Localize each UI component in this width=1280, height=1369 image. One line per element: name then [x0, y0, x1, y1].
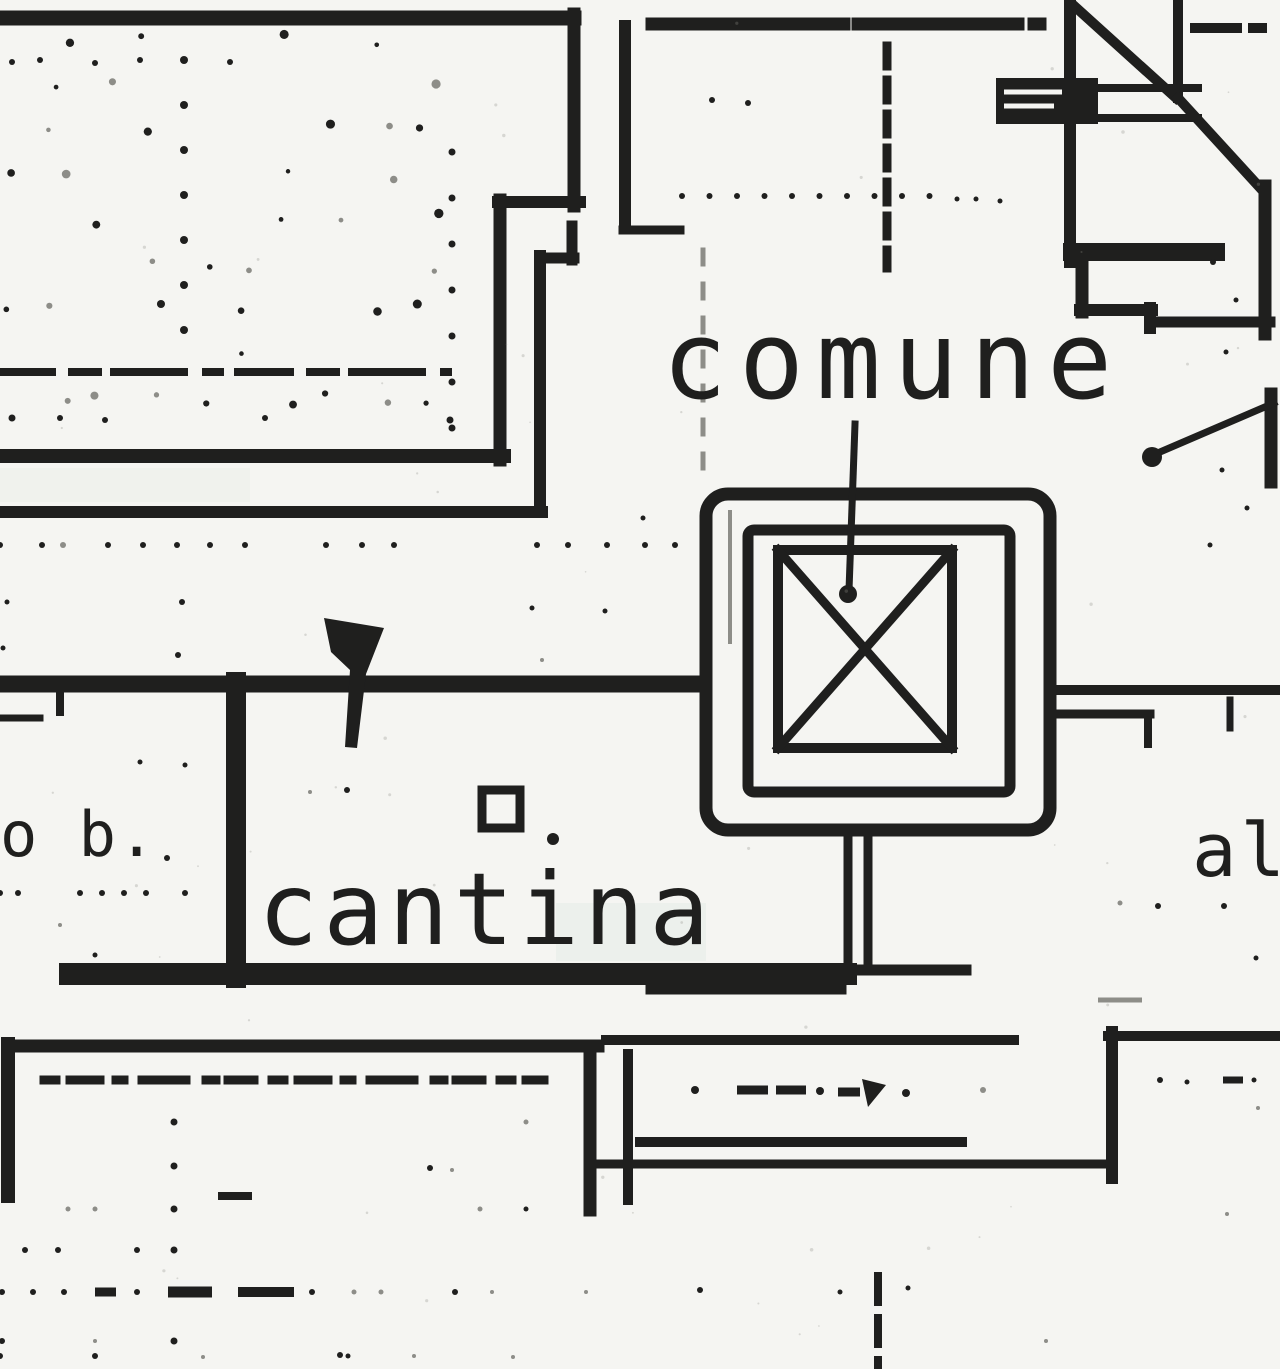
stipple-dot: [1221, 903, 1227, 909]
stipple-dot: [816, 1087, 824, 1095]
stipple-dot: [707, 193, 713, 199]
stipple-dot: [60, 542, 66, 548]
stipple-dot: [61, 1289, 67, 1295]
scan-speck: [502, 134, 505, 137]
stipple-dot: [478, 1207, 483, 1212]
stipple-dot: [899, 193, 905, 199]
stipple-dot: [697, 1287, 703, 1293]
scan-speck: [735, 22, 738, 25]
stipple-dot: [180, 191, 188, 199]
stipple-dot: [54, 85, 59, 90]
stipple-dot: [906, 1286, 911, 1291]
stipple-dot: [180, 101, 188, 109]
scan-speck: [248, 1019, 250, 1021]
scan-speck: [257, 258, 260, 261]
stipple-dot: [180, 236, 188, 244]
stipple-dot: [927, 193, 933, 199]
stipple-dot: [326, 120, 335, 129]
stipple-dot: [838, 1290, 843, 1295]
stipple-dot: [92, 1353, 98, 1359]
stipple-dot: [434, 209, 443, 218]
stipple-dot: [524, 1120, 529, 1125]
stipple-dot: [452, 1289, 458, 1295]
stipple-dot: [1252, 1078, 1257, 1083]
stipple-dot: [134, 1289, 140, 1295]
stipple-dot: [385, 399, 391, 405]
stipple-dot: [180, 281, 188, 289]
stipple-dot: [77, 890, 83, 896]
stipple-dot: [323, 542, 329, 548]
stipple-dot: [416, 124, 423, 131]
stipple-dot: [143, 890, 149, 896]
stipple-dot: [22, 1247, 28, 1253]
stipple-dot: [15, 890, 21, 896]
stipple-dot: [391, 542, 397, 548]
stipple-dot: [449, 241, 456, 248]
stipple-dot: [66, 39, 74, 47]
stipple-dot: [449, 333, 456, 340]
stipple-dot: [346, 1354, 351, 1359]
stipple-dot: [789, 193, 795, 199]
scan-speck: [601, 1176, 604, 1179]
stipple-dot: [134, 1247, 140, 1253]
scan-speck: [335, 786, 337, 788]
scan-speck: [927, 1246, 931, 1250]
floor-plan-scan: comune cantina o b. al: [0, 0, 1280, 1369]
stipple-dot: [390, 176, 397, 183]
stipple-dot: [242, 542, 248, 548]
stipple-dot: [92, 60, 98, 66]
scan-speck: [1186, 363, 1189, 366]
scan-speck: [799, 1333, 801, 1335]
walls: [0, 14, 1280, 1210]
stipple-dot: [138, 760, 143, 765]
stipple-dot: [1254, 956, 1259, 961]
tint-patch: [0, 468, 250, 502]
stipple-dot: [144, 127, 152, 135]
stipple-dot: [450, 1168, 454, 1172]
scan-speck: [757, 1302, 759, 1304]
scan-speck: [810, 1248, 814, 1252]
arrow-triangle-mark: [862, 1079, 886, 1107]
stipple-dot: [207, 264, 213, 270]
scan-speck: [52, 792, 54, 794]
stipple-dot: [4, 306, 10, 312]
stipple-dot: [174, 542, 180, 548]
stipple-dot: [150, 258, 156, 264]
scan-speck: [585, 571, 587, 573]
scan-speck: [1121, 130, 1125, 134]
stipple-dot: [280, 30, 289, 39]
stipple-dot: [955, 197, 960, 202]
stipple-dot: [642, 542, 648, 548]
stipple-dot: [99, 890, 105, 896]
stipple-dot: [1157, 1077, 1163, 1083]
stipple-dot: [844, 193, 850, 199]
stipple-dot: [524, 1207, 529, 1212]
stipple-dot: [180, 146, 188, 154]
scan-speck: [860, 176, 863, 179]
stipple-dot: [109, 78, 116, 85]
stipple-dot: [66, 1207, 71, 1212]
comune-leader-line: [849, 424, 855, 590]
stipple-dot: [374, 42, 379, 47]
stipple-dot: [0, 890, 3, 896]
scan-speck: [135, 884, 138, 887]
stipple-dot: [322, 390, 328, 396]
stair-diagonal: [1178, 98, 1264, 192]
stipple-dot: [9, 59, 15, 65]
stipple-dot: [352, 1290, 357, 1295]
scan-speck: [1257, 183, 1260, 186]
stipple-dot: [745, 100, 751, 106]
stipple-dot: [449, 379, 456, 386]
scan-speck: [159, 956, 161, 958]
stipple-dot: [604, 542, 610, 548]
scan-speck: [162, 1269, 165, 1272]
stipple-dot: [337, 1352, 343, 1358]
scan-speck: [818, 1325, 820, 1327]
stipple-dot: [137, 57, 143, 63]
stipple-dot: [93, 953, 98, 958]
stipple-dot: [121, 890, 127, 896]
stipple-dot: [1210, 259, 1216, 265]
elevator-symbol: [706, 494, 1050, 974]
stipple-dot: [289, 401, 297, 409]
scan-speck: [494, 103, 497, 106]
stipple-dot: [171, 1119, 178, 1126]
stipple-dot: [238, 307, 245, 314]
room-labels: comune cantina o b. al: [0, 299, 1280, 968]
stipple-dot: [90, 392, 98, 400]
stipple-dot: [201, 1355, 205, 1359]
stipple-dot: [379, 1290, 384, 1295]
stipple-dot: [171, 1338, 178, 1345]
stipple-dot: [432, 269, 437, 274]
stipple-dot: [37, 57, 43, 63]
scan-speck: [979, 1236, 981, 1238]
stipple-dot: [203, 400, 209, 406]
scan-speck: [506, 343, 508, 345]
stipple-dot: [709, 97, 715, 103]
small-dot-mark: [547, 833, 559, 845]
stipple-dot: [359, 542, 365, 548]
stipple-dot: [386, 123, 393, 130]
stipple-dot: [449, 195, 456, 202]
stipple-dot: [1234, 298, 1239, 303]
stipple-dot: [672, 542, 678, 548]
stipple-dot: [105, 542, 111, 548]
stipple-dot: [279, 217, 284, 222]
door-leader-dot: [1142, 447, 1162, 467]
scan-speck: [1089, 603, 1092, 606]
stipple-dot: [182, 890, 188, 896]
scan-speck: [747, 847, 750, 850]
stipple-dot: [0, 1289, 5, 1295]
stipple-dot: [46, 128, 51, 133]
scan-speck: [366, 1212, 369, 1215]
stipple-dot: [565, 542, 571, 548]
label-al-partial: al: [1192, 808, 1280, 894]
dashed-lines: [0, 46, 887, 1369]
stipple-dot: [427, 1165, 433, 1171]
stipple-dot: [679, 193, 685, 199]
stipple-dot: [734, 193, 740, 199]
scan-speck: [529, 421, 531, 423]
stipple-dot: [530, 606, 535, 611]
scan-speck: [61, 427, 63, 429]
scan-speck: [436, 491, 439, 494]
stipple-dot: [449, 425, 456, 432]
stipple-dot: [449, 149, 456, 156]
stipple-dot: [65, 398, 71, 404]
stipple-dot: [308, 790, 312, 794]
stipple-dot: [62, 170, 71, 179]
stipple-dot: [58, 923, 62, 927]
scan-speck: [1051, 67, 1054, 70]
scan-speck: [304, 633, 307, 636]
stipple-dot: [5, 600, 10, 605]
stipple-dot: [490, 1290, 494, 1294]
scan-speck: [1010, 1206, 1012, 1208]
scan-speck: [1106, 862, 1108, 864]
stipple-dot: [57, 415, 63, 421]
stipple-dot: [1118, 901, 1123, 906]
label-comune: comune: [662, 299, 1124, 424]
stipple-dot: [239, 351, 244, 356]
scan-speck: [1080, 251, 1082, 253]
stipple-dot: [171, 1206, 178, 1213]
stipple-dot: [423, 400, 428, 405]
stipple-dot: [1225, 1212, 1229, 1216]
stipple-dot: [179, 599, 185, 605]
stipple-dot: [180, 326, 188, 334]
label-cantina: cantina: [258, 851, 714, 968]
stipple-dot: [1155, 903, 1161, 909]
stipple-dot: [511, 1355, 515, 1359]
stipple-dot: [171, 1163, 178, 1170]
stipple-dot: [1185, 1080, 1190, 1085]
stipple-dot: [449, 287, 456, 294]
stipple-dot: [55, 1247, 61, 1253]
scan-speck: [845, 589, 848, 592]
stipple-dot: [9, 415, 16, 422]
stipple-dot: [534, 542, 540, 548]
stipple-dot: [309, 1289, 315, 1295]
scan-speck: [143, 246, 146, 249]
stipple-dot: [93, 1339, 97, 1343]
scan-speck: [176, 1277, 178, 1279]
stipple-dot: [1245, 506, 1250, 511]
small-square-mark: [482, 790, 520, 828]
stipple-dot: [1220, 468, 1225, 473]
stipple-dot: [92, 221, 100, 229]
stipple-dot: [344, 787, 350, 793]
scan-speck: [388, 793, 391, 796]
stipple-dot: [641, 516, 646, 521]
stipple-dot: [373, 307, 382, 316]
label-ob-partial: o b.: [0, 798, 157, 871]
stipple-dot: [180, 56, 188, 64]
stipple-dot: [175, 652, 181, 658]
stipple-dot: [339, 218, 344, 223]
stipple-dot: [1, 646, 6, 651]
stipple-dot: [431, 79, 440, 88]
stairs-symbol: [996, 0, 1270, 334]
stipple-dot: [974, 197, 979, 202]
stipple-dot: [691, 1086, 699, 1094]
stipple-dot: [902, 1089, 910, 1097]
scan-speck: [250, 851, 252, 853]
stipple-dot: [762, 193, 768, 199]
scan-speck: [381, 382, 383, 384]
stipple-dot: [584, 1290, 588, 1294]
scan-speck: [1228, 91, 1230, 93]
door-leader-line: [1160, 403, 1274, 452]
scan-speck: [416, 472, 418, 474]
stipple-dot: [1224, 350, 1229, 355]
stipple-dot: [154, 392, 159, 397]
stipple-dot: [998, 199, 1003, 204]
stipple-dot: [164, 855, 170, 861]
stipple-dot: [1256, 1106, 1260, 1110]
stipple-dot: [412, 1354, 416, 1358]
scan-speck: [1237, 347, 1239, 349]
stipple-dot: [980, 1087, 986, 1093]
stipple-dot: [171, 1247, 178, 1254]
scan-speck: [522, 354, 525, 357]
stipple-dot: [1044, 1339, 1048, 1343]
stipple-dot: [30, 1289, 36, 1295]
stipple-dot: [93, 1207, 98, 1212]
stipple-dot: [39, 542, 45, 548]
stipple-dot: [157, 300, 165, 308]
scan-speck: [425, 1299, 428, 1302]
stipple-dot: [0, 542, 3, 548]
stipple-dot: [138, 33, 144, 39]
stipple-dot: [817, 193, 823, 199]
stipple-dot: [447, 417, 454, 424]
scan-speck: [1243, 715, 1246, 718]
stipple-dot: [413, 300, 422, 309]
comune-leader-dot: [839, 585, 857, 603]
stipple-dot: [46, 303, 52, 309]
stipple-dot: [872, 193, 878, 199]
scan-speck: [1054, 844, 1056, 846]
scan-speck: [383, 736, 386, 739]
stipple-dot: [262, 415, 268, 421]
door-threshold-block: [996, 78, 1098, 124]
stipple-dot: [7, 169, 15, 177]
stipple-dot: [227, 59, 233, 65]
stipple-dot: [1208, 543, 1213, 548]
stipple-dot: [102, 417, 108, 423]
stipple-dot: [0, 1353, 3, 1359]
scan-speck: [804, 1025, 807, 1028]
stipple-dot: [246, 268, 252, 274]
stipple-dot: [286, 169, 290, 173]
stipple-dot: [207, 542, 213, 548]
stipple-dot: [540, 658, 544, 662]
stipple-dot: [183, 763, 188, 768]
stipple-dot: [603, 609, 608, 614]
scan-speck: [632, 1212, 634, 1214]
stipple-dot: [0, 1338, 5, 1344]
scan-speck: [197, 865, 199, 867]
stipple-dot: [140, 542, 146, 548]
scan-speck: [1106, 1003, 1109, 1006]
floor-plan-canvas: comune cantina o b. al: [0, 0, 1280, 1369]
